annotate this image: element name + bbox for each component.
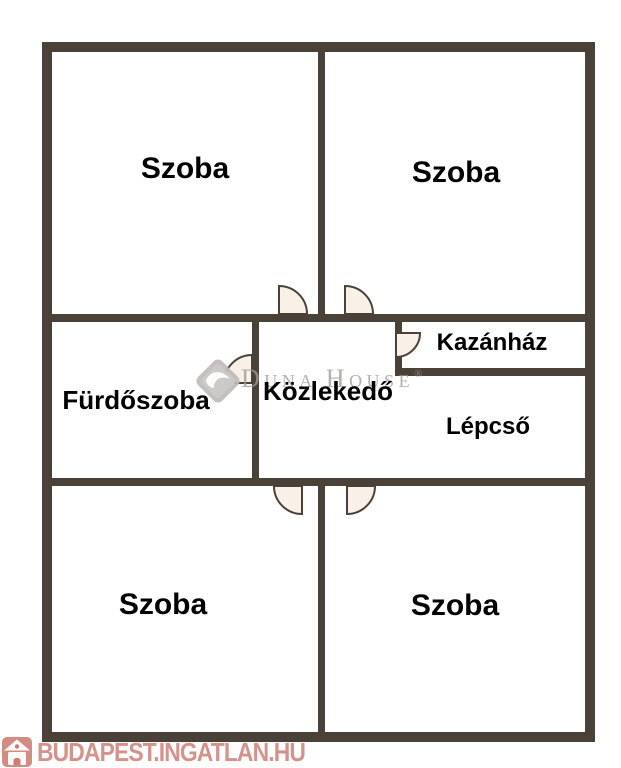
house-icon [2, 737, 32, 767]
registered-trademark-symbol: ® [414, 368, 422, 380]
watermark-initial-d: D [241, 364, 264, 393]
wall-upper-corridor [52, 314, 585, 322]
wall-outer-left [42, 42, 52, 742]
door-arc-top-right-room [345, 286, 373, 314]
door-arc-boiler-room [396, 333, 420, 357]
door-arc-bottom-left-room [274, 486, 302, 514]
room-label-kozlekedo: Közlekedő [263, 378, 393, 404]
wall-outer-right [585, 42, 595, 742]
wall-lower-corridor [52, 478, 585, 486]
door-arc-top-left-room [279, 286, 307, 314]
site-brand: BUDAPEST.INGATLAN.HU [2, 737, 342, 767]
room-label-szoba-bottom-right: Szoba [411, 591, 499, 621]
room-label-lepcso: Lépcső [446, 415, 530, 439]
floorplan-canvas: DUNA HOUSE® Szoba Szoba Fürdőszoba Közle… [0, 0, 621, 768]
wall-outer-top [42, 42, 595, 52]
wall-bottom-rooms-divider [318, 486, 325, 732]
site-brand-text: BUDAPEST.INGATLAN.HU [37, 739, 305, 765]
wall-top-rooms-divider [318, 52, 325, 314]
wall-boiler-left-upper [395, 322, 402, 333]
room-label-furdoszoba: Fürdőszoba [62, 387, 209, 413]
room-label-kazanhaz: Kazánház [437, 331, 548, 355]
wall-bathroom-corridor [252, 322, 259, 478]
door-arc-bottom-right-room [347, 486, 375, 514]
room-label-szoba-bottom-left: Szoba [119, 590, 207, 620]
wall-boiler-bottom [395, 368, 585, 376]
room-label-szoba-top-right: Szoba [412, 158, 500, 188]
room-label-szoba-top-left: Szoba [141, 154, 229, 184]
